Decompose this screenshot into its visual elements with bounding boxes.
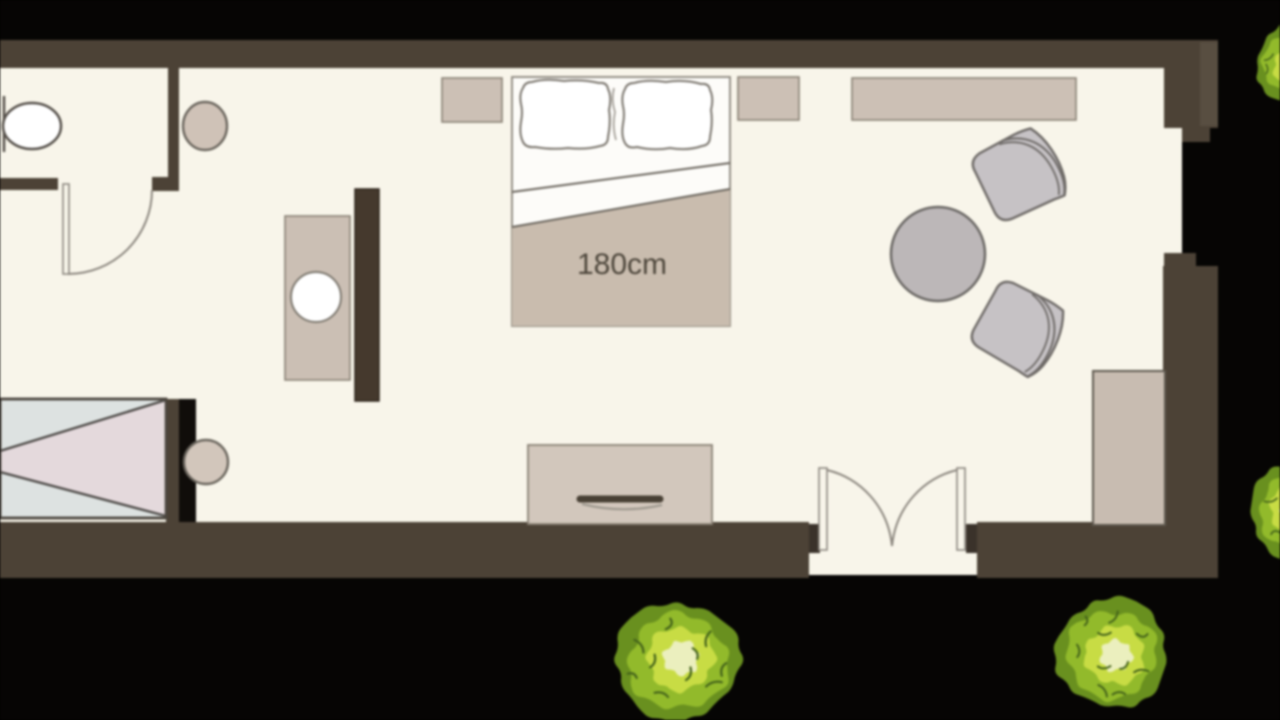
svg-text:180cm: 180cm [577,248,667,281]
